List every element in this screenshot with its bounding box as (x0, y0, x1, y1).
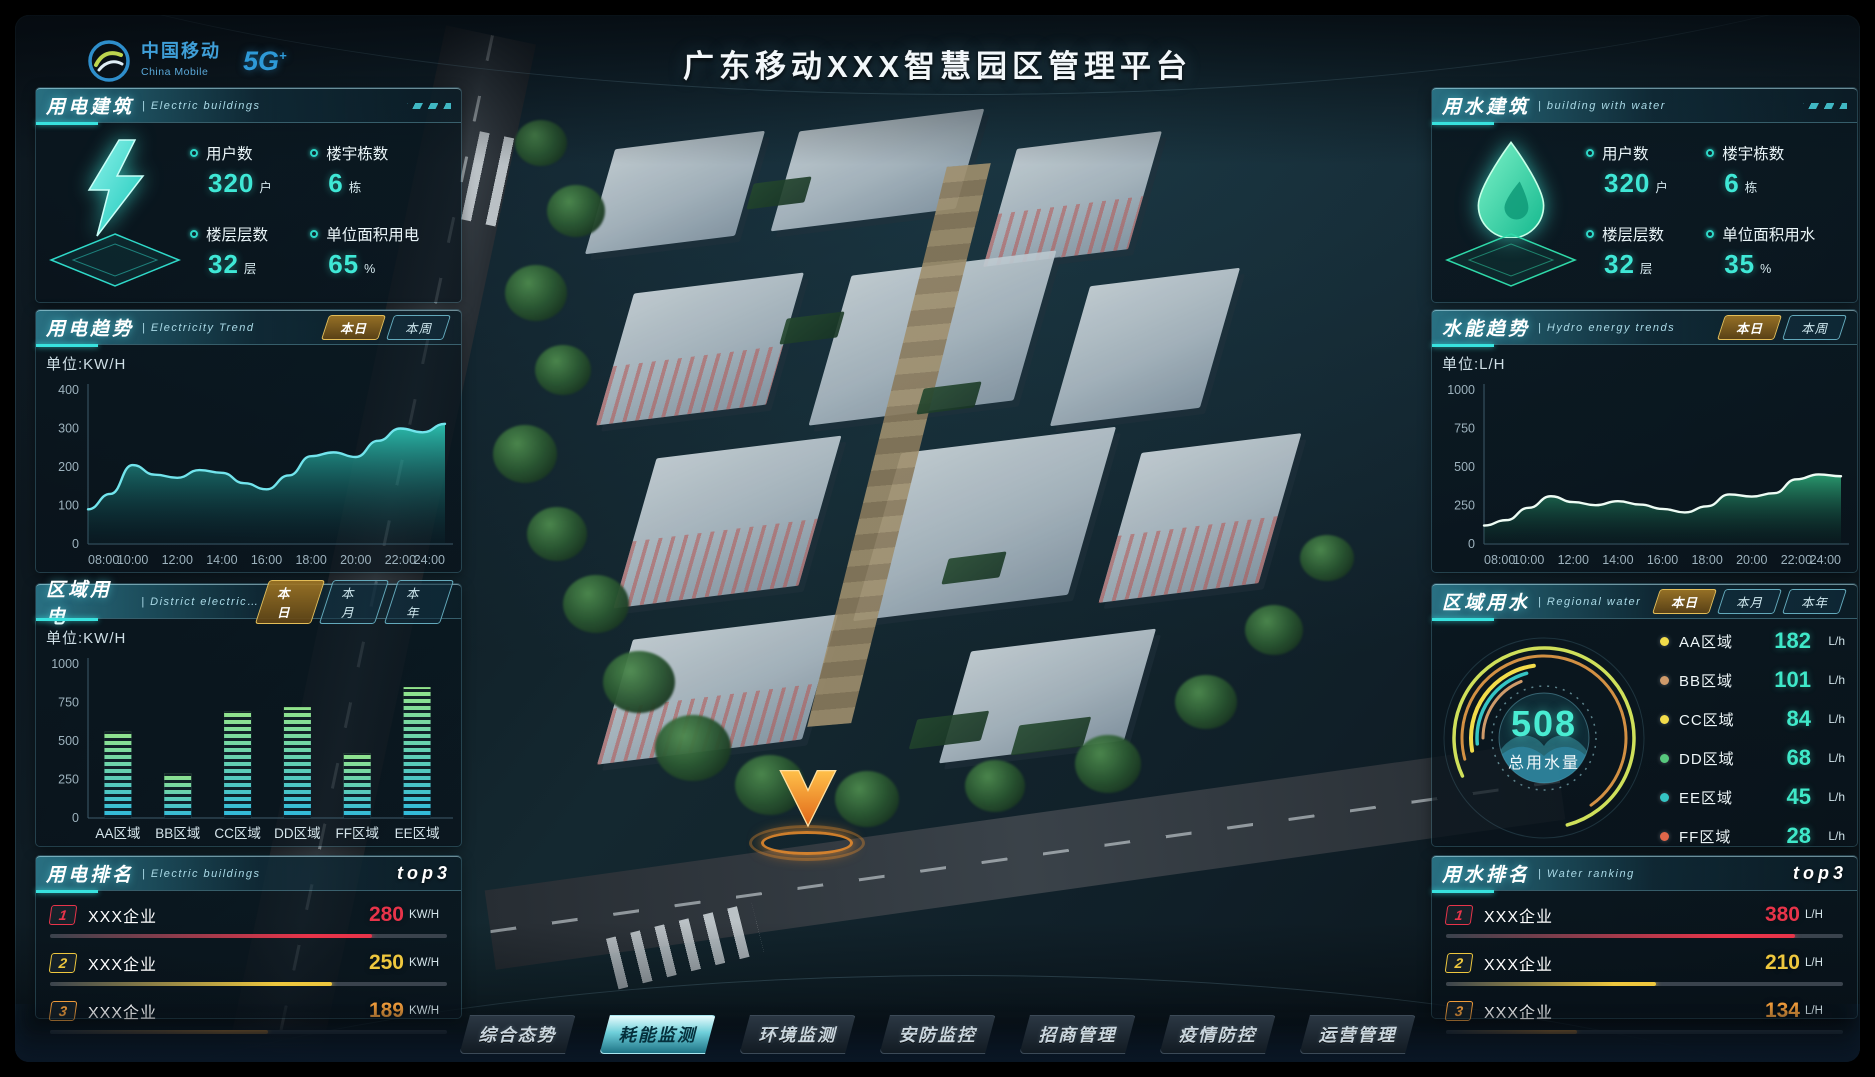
nav-operations-management[interactable]: 运营管理 (1300, 1015, 1416, 1054)
top3-label: top3 (1793, 863, 1847, 884)
legend-item: FF区域 28 L/h (1660, 823, 1845, 849)
stat-buildings: 楼宇栋数 6栋 (310, 142, 453, 199)
panel-header: 用水排名 | Water ranking top3 (1432, 856, 1857, 890)
stat-floors: 楼层层数 32层 (190, 223, 304, 280)
panel-header: 用电排名 | Electric buildings top3 (36, 856, 461, 890)
panel-water-ranking: 用水排名 | Water ranking top3 1 XXX企业 380 L/… (1432, 856, 1857, 1018)
svg-text:300: 300 (58, 422, 79, 436)
svg-text:EE区域: EE区域 (395, 826, 440, 841)
panel-electricity-trend: 用电趋势 | Electricity Trend 本日 本周 单位:KW/H 0… (36, 310, 461, 572)
tab-this-week[interactable]: 本周 (1782, 315, 1847, 340)
panel-title: 区域用电 (46, 575, 133, 629)
panel-subtitle: | Water ranking (1538, 868, 1635, 880)
svg-text:FF区域: FF区域 (336, 826, 380, 841)
hex-platform (45, 232, 185, 288)
tab-today[interactable]: 本日 (321, 315, 386, 340)
svg-text:750: 750 (58, 696, 79, 710)
legend-item: AA区域 182 L/h (1660, 628, 1845, 654)
legend-dot (1660, 637, 1669, 646)
unit-label: 单位:L/H (1442, 353, 1857, 374)
svg-text:08:00: 08:00 (88, 553, 119, 567)
bullet-icon (1586, 149, 1594, 157)
panel-subtitle: | Electric buildings (142, 100, 260, 112)
svg-text:14:00: 14:00 (1602, 553, 1633, 567)
tab-this-year[interactable]: 本年 (383, 580, 454, 624)
panel-title: 区域用水 (1442, 588, 1530, 615)
svg-text:0: 0 (1468, 537, 1475, 551)
tab-this-month[interactable]: 本月 (319, 580, 390, 624)
panel-subtitle: | District electricity (141, 596, 261, 608)
panel-subtitle: | Electric buildings (142, 868, 260, 880)
svg-text:18:00: 18:00 (295, 553, 326, 567)
water-drop-icon (1436, 136, 1586, 286)
stat-users: 用户数 320户 (190, 142, 304, 199)
bullet-icon (310, 149, 318, 157)
svg-text:22:00: 22:00 (1781, 553, 1812, 567)
rank-progress (1446, 982, 1843, 986)
stat-unit-area-electricity: 单位面积用电 65% (310, 223, 453, 280)
hydro-trend-chart: 0250500750100008:0010:0012:0014:0016:001… (1436, 376, 1853, 572)
panel-subtitle: | building with water (1538, 100, 1666, 112)
nav-epidemic-control[interactable]: 疫情防控 (1160, 1015, 1276, 1054)
svg-text:0: 0 (72, 537, 79, 551)
svg-text:14:00: 14:00 (206, 553, 237, 567)
legend-dot (1660, 754, 1669, 763)
panel-hydro-trend: 水能趋势 | Hydro energy trends 本日 本周 单位:L/H … (1432, 310, 1857, 572)
top3-label: top3 (397, 863, 451, 884)
panel-header: 用水建筑 | building with water (1432, 88, 1857, 122)
rank-badge: 2 (49, 953, 78, 973)
tab-today[interactable]: 本日 (1717, 315, 1782, 340)
unit-label: 单位:KW/H (46, 627, 461, 648)
svg-text:250: 250 (1454, 499, 1475, 513)
bullet-icon (310, 230, 318, 238)
header-decoration (407, 103, 451, 109)
legend-dot (1660, 793, 1669, 802)
panel-subtitle: | Electricity Trend (142, 322, 254, 334)
panel-title: 水能趋势 (1442, 314, 1530, 341)
panel-header: 区域用水 | Regional water 本日 本月 本年 (1432, 584, 1857, 618)
rank-progress (1446, 934, 1843, 938)
bullet-icon (1586, 230, 1594, 238)
panel-header: 区域用电 | District electricity 本日 本月 本年 (36, 584, 461, 618)
svg-text:BB区域: BB区域 (155, 826, 200, 841)
svg-text:750: 750 (1454, 422, 1475, 436)
panel-electric-buildings: 用电建筑 | Electric buildings 用户数 (36, 88, 461, 302)
legend-item: DD区域 68 L/h (1660, 745, 1845, 771)
nav-security-monitoring[interactable]: 安防监控 (880, 1015, 996, 1054)
nav-investment-management[interactable]: 招商管理 (1020, 1015, 1136, 1054)
page-title: 广东移动XXX智慧园区管理平台 (15, 41, 1860, 86)
panel-title: 用水排名 (1442, 860, 1530, 887)
svg-text:DD区域: DD区域 (274, 826, 321, 841)
svg-text:500: 500 (58, 734, 79, 748)
panel-header: 水能趋势 | Hydro energy trends 本日 本周 (1432, 310, 1857, 344)
nav-environment-monitoring[interactable]: 环境监测 (740, 1015, 856, 1054)
tab-today[interactable]: 本日 (1652, 589, 1717, 614)
tab-this-week[interactable]: 本周 (386, 315, 451, 340)
legend-dot (1660, 832, 1669, 841)
svg-text:10:00: 10:00 (117, 553, 148, 567)
svg-text:1000: 1000 (51, 657, 79, 671)
bottom-nav: 综合态势 耗能监测 环境监测 安防监控 招商管理 疫情防控 运营管理 (15, 1015, 1860, 1054)
svg-text:1000: 1000 (1447, 383, 1475, 397)
dashboard-stage: 中国移动 China Mobile 5G+ 广东移动XXX智慧园区管理平台 用电… (15, 15, 1860, 1062)
bullet-icon (190, 149, 198, 157)
panel-title: 用电建筑 (46, 92, 134, 119)
ranking-row-1: 1 XXX企业 380 L/H (1446, 903, 1843, 938)
ranking-row-2: 2 XXX企业 250 KW/H (50, 951, 447, 986)
total-water-gauge: 508 总用水量 (1438, 632, 1650, 844)
stat-users: 用户数 320户 (1586, 142, 1700, 199)
rank-progress (50, 934, 447, 938)
tab-this-month[interactable]: 本月 (1717, 589, 1782, 614)
svg-text:12:00: 12:00 (162, 553, 193, 567)
panel-subtitle: | Regional water (1538, 596, 1641, 608)
rank-progress (50, 982, 447, 986)
panel-district-electricity: 区域用电 | District electricity 本日 本月 本年 单位:… (36, 584, 461, 846)
legend-item: CC区域 84 L/h (1660, 706, 1845, 732)
tab-this-year[interactable]: 本年 (1782, 589, 1847, 614)
svg-text:24:00: 24:00 (414, 553, 445, 567)
nav-energy-monitoring[interactable]: 耗能监测 (600, 1015, 716, 1054)
nav-overview[interactable]: 综合态势 (460, 1015, 576, 1054)
lightning-icon (40, 136, 190, 286)
svg-text:18:00: 18:00 (1691, 553, 1722, 567)
stat-floors: 楼层层数 32层 (1586, 223, 1700, 280)
bullet-icon (190, 230, 198, 238)
district-electricity-chart: 02505007501000AA区域BB区域CC区域DD区域FF区域EE区域 (40, 650, 457, 846)
panel-title: 用水建筑 (1442, 92, 1530, 119)
electricity-trend-chart: 010020030040008:0010:0012:0014:0016:0018… (40, 376, 457, 572)
panel-title: 用电趋势 (46, 314, 134, 341)
rank-badge: 1 (1445, 905, 1474, 925)
panel-regional-water: 区域用水 | Regional water 本日 本月 本年 508 总用水量 … (1432, 584, 1857, 846)
panel-subtitle: | Hydro energy trends (1538, 322, 1675, 334)
svg-text:12:00: 12:00 (1558, 553, 1589, 567)
svg-text:500: 500 (1454, 460, 1475, 474)
svg-text:100: 100 (58, 499, 79, 513)
ranking-row-2: 2 XXX企业 210 L/H (1446, 951, 1843, 986)
svg-text:CC区域: CC区域 (214, 826, 260, 841)
rank-badge: 2 (1445, 953, 1474, 973)
svg-text:08:00: 08:00 (1484, 553, 1515, 567)
legend-dot (1660, 676, 1669, 685)
panel-header: 用电建筑 | Electric buildings (36, 88, 461, 122)
ranking-row-1: 1 XXX企业 280 KW/H (50, 903, 447, 938)
svg-text:24:00: 24:00 (1810, 553, 1841, 567)
legend-item: BB区域 101 L/h (1660, 667, 1845, 693)
legend-dot (1660, 715, 1669, 724)
hex-platform (1441, 232, 1581, 288)
panel-title: 用电排名 (46, 860, 134, 887)
rank-badge: 1 (49, 905, 78, 925)
svg-text:16:00: 16:00 (251, 553, 282, 567)
svg-text:20:00: 20:00 (340, 553, 371, 567)
svg-text:0: 0 (72, 811, 79, 825)
svg-text:250: 250 (58, 773, 79, 787)
tab-today[interactable]: 本日 (254, 580, 325, 624)
svg-text:200: 200 (58, 460, 79, 474)
svg-text:AA区域: AA区域 (95, 826, 140, 841)
svg-text:400: 400 (58, 383, 79, 397)
panel-electric-ranking: 用电排名 | Electric buildings top3 1 XXX企业 2… (36, 856, 461, 1018)
header-decoration (1803, 103, 1847, 109)
panel-header: 用电趋势 | Electricity Trend 本日 本周 (36, 310, 461, 344)
location-marker-icon (753, 767, 863, 877)
bullet-icon (1706, 230, 1714, 238)
unit-label: 单位:KW/H (46, 353, 461, 374)
panel-water-buildings: 用水建筑 | building with water (1432, 88, 1857, 302)
svg-text:20:00: 20:00 (1736, 553, 1767, 567)
stat-buildings: 楼宇栋数 6栋 (1706, 142, 1849, 199)
svg-text:16:00: 16:00 (1647, 553, 1678, 567)
legend-item: EE区域 45 L/h (1660, 784, 1845, 810)
svg-text:22:00: 22:00 (385, 553, 416, 567)
stat-unit-area-water: 单位面积用水 35% (1706, 223, 1849, 280)
svg-text:10:00: 10:00 (1513, 553, 1544, 567)
bullet-icon (1706, 149, 1714, 157)
water-legend: AA区域 182 L/h BB区域 101 L/h CC区域 84 L/h (1650, 626, 1847, 849)
